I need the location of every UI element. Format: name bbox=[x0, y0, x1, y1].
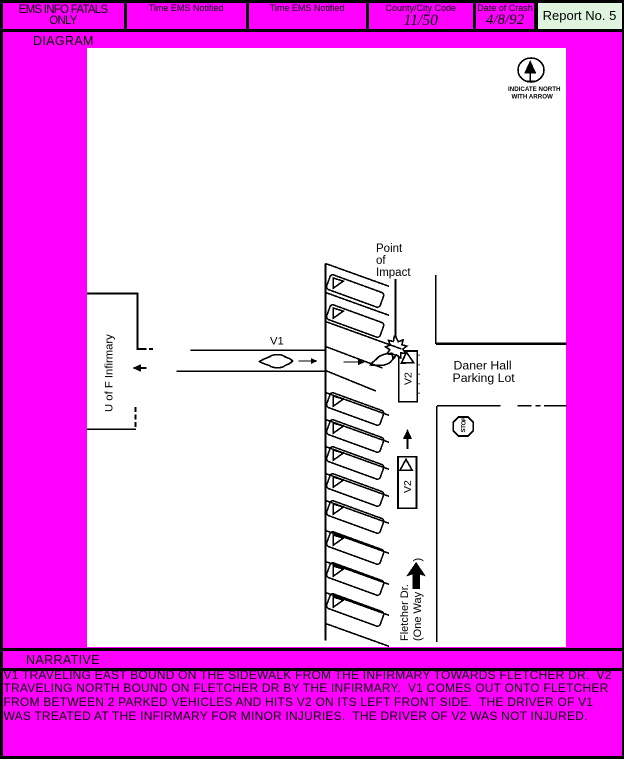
svg-text:V1: V1 bbox=[270, 335, 284, 347]
svg-text:U of F Infirmary: U of F Infirmary bbox=[103, 333, 115, 411]
svg-text:of: of bbox=[376, 255, 386, 267]
svg-text:Fletcher Dr.: Fletcher Dr. bbox=[399, 584, 411, 641]
svg-text:V2: V2 bbox=[402, 371, 414, 384]
svg-text:): ) bbox=[412, 557, 424, 561]
svg-text:Impact: Impact bbox=[376, 267, 411, 279]
svg-text:(One Way: (One Way bbox=[412, 591, 424, 641]
svg-text:V2: V2 bbox=[402, 479, 414, 492]
svg-text:Parking Lot: Parking Lot bbox=[452, 371, 515, 385]
svg-text:STOP: STOP bbox=[461, 416, 468, 432]
svg-text:WITH ARROW: WITH ARROW bbox=[511, 93, 553, 100]
svg-text:Point: Point bbox=[376, 243, 403, 255]
svg-text:INDICATE NORTH: INDICATE NORTH bbox=[508, 85, 561, 92]
